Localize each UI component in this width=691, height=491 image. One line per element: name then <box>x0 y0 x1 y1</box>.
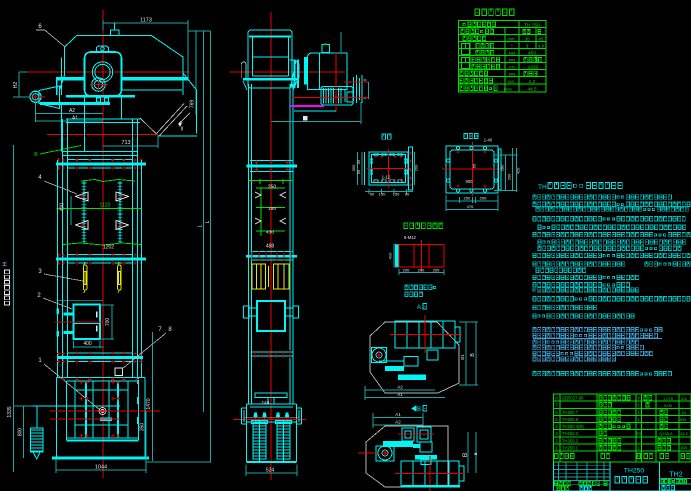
svg-text:r/min: r/min <box>504 88 512 92</box>
svg-text:44.5: 44.5 <box>527 87 537 93</box>
svg-text:TH2: TH2 <box>669 472 682 479</box>
svg-text:800: 800 <box>18 428 24 437</box>
svg-text:TH250.1: TH250.1 <box>562 446 579 451</box>
svg-text:488: 488 <box>266 244 275 250</box>
svg-text:400: 400 <box>83 341 92 347</box>
svg-text:1173: 1173 <box>140 18 152 24</box>
svg-text:476: 476 <box>467 204 474 209</box>
svg-text:24: 24 <box>636 431 641 436</box>
svg-text:MM: MM <box>509 71 516 76</box>
svg-text:MM: MM <box>509 57 516 62</box>
svg-text:8-M12: 8-M12 <box>404 235 417 240</box>
svg-text:1.2: 1.2 <box>529 79 536 85</box>
svg-text:TH250.7: TH250.7 <box>562 410 579 415</box>
svg-text:TH250: TH250 <box>624 468 645 475</box>
svg-text:150: 150 <box>379 192 386 197</box>
svg-text:835: 835 <box>680 417 687 422</box>
svg-text:B1: B1 <box>460 354 465 360</box>
svg-text:51: 51 <box>682 410 687 415</box>
svg-text:a: a <box>473 452 479 455</box>
svg-text:B: B <box>34 152 38 158</box>
svg-text:H2: H2 <box>13 82 19 89</box>
svg-text:713: 713 <box>121 140 130 146</box>
svg-text:TH250.3: TH250.3 <box>562 431 579 436</box>
svg-text:B: B <box>417 407 421 413</box>
svg-text:260: 260 <box>414 164 419 171</box>
svg-text:MM: MM <box>509 50 516 55</box>
svg-text:700: 700 <box>105 318 111 327</box>
svg-text:L: L <box>198 224 204 227</box>
svg-text:8.6: 8.6 <box>681 396 687 401</box>
svg-text:M/S: M/S <box>507 79 514 84</box>
svg-text:TH: TH <box>538 184 547 191</box>
svg-text:A1: A1 <box>397 392 403 397</box>
svg-text:Q235-A: Q235-A <box>659 431 673 436</box>
svg-text:65: 65 <box>356 169 361 174</box>
svg-text:250: 250 <box>464 196 471 201</box>
svg-text:1202: 1202 <box>103 244 114 250</box>
svg-text:TH250.4(R): TH250.4(R) <box>562 424 584 429</box>
svg-text:L: L <box>205 220 211 223</box>
svg-text:l: l <box>512 43 513 48</box>
svg-text:524: 524 <box>266 468 275 474</box>
svg-text:200: 200 <box>507 173 512 180</box>
svg-text:1-12: 1-12 <box>382 175 391 180</box>
svg-text:4.8: 4.8 <box>538 43 544 48</box>
svg-text:350: 350 <box>140 423 146 432</box>
svg-text:24.2: 24.2 <box>680 431 689 436</box>
svg-text:GB5027-86: GB5027-86 <box>562 396 584 401</box>
svg-text:144: 144 <box>261 400 269 406</box>
svg-text:1.078: 1.078 <box>663 396 674 401</box>
svg-text:900: 900 <box>466 179 474 184</box>
svg-text:450: 450 <box>528 51 536 57</box>
svg-text:200: 200 <box>480 196 487 201</box>
svg-text:KN: KN <box>509 64 515 69</box>
svg-text:1120: 1120 <box>100 203 111 209</box>
svg-text:180: 180 <box>268 206 276 212</box>
svg-text:410: 410 <box>388 252 393 259</box>
svg-text:1-40: 1-40 <box>484 138 493 143</box>
svg-text:420: 420 <box>516 167 521 174</box>
svg-text:400: 400 <box>60 203 66 212</box>
svg-text:H: H <box>3 262 9 266</box>
svg-text:A2: A2 <box>397 385 403 390</box>
svg-text:1335: 1335 <box>7 406 13 417</box>
svg-text:430: 430 <box>266 230 274 236</box>
svg-text:150: 150 <box>393 192 400 197</box>
svg-text:250: 250 <box>268 185 277 191</box>
svg-text:280: 280 <box>500 164 505 171</box>
svg-text:A: A <box>417 305 421 311</box>
svg-text:1470: 1470 <box>146 398 152 409</box>
svg-text:1044: 1044 <box>95 465 107 471</box>
svg-text:55: 55 <box>356 159 361 164</box>
svg-text:835: 835 <box>681 445 688 450</box>
svg-text:90: 90 <box>370 192 375 197</box>
svg-text:769: 769 <box>190 100 196 109</box>
svg-text:45: 45 <box>538 36 544 41</box>
svg-text:90: 90 <box>405 192 410 197</box>
svg-text:TH250.2: TH250.2 <box>562 439 579 444</box>
svg-text:≥320: ≥320 <box>528 65 539 71</box>
svg-text:A2: A2 <box>69 108 75 114</box>
svg-text:200: 200 <box>418 268 425 273</box>
svg-text:30: 30 <box>524 36 530 41</box>
svg-text:TH 250: TH 250 <box>524 22 540 28</box>
svg-text:TH250.6: TH250.6 <box>562 417 579 422</box>
svg-text:mm: mm <box>508 36 515 41</box>
svg-text:200: 200 <box>403 268 410 273</box>
svg-text:A2: A2 <box>395 420 401 425</box>
svg-text:A1: A1 <box>395 412 401 417</box>
svg-text:B: B <box>462 453 469 457</box>
svg-text:200: 200 <box>433 268 440 273</box>
svg-text:9.06: 9.06 <box>664 403 673 408</box>
svg-text:65: 65 <box>472 163 477 168</box>
